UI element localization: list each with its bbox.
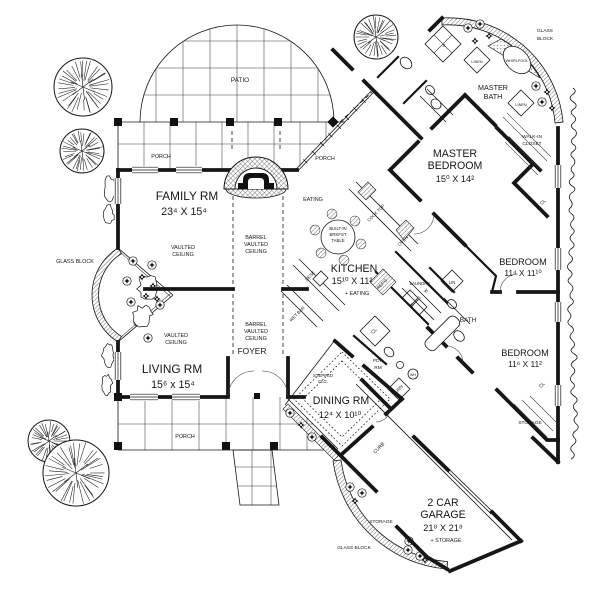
label-porch: PORCH — [151, 154, 171, 160]
label-storage: STORAGE — [369, 519, 392, 525]
room-label-master-1: MASTER — [433, 148, 477, 160]
window — [132, 166, 158, 174]
window — [130, 393, 158, 401]
label-glass-block-left: GLASS BLOCK — [56, 259, 94, 265]
fireplace — [224, 157, 288, 198]
label-water-heater: WH — [410, 373, 417, 377]
shrub-icon — [102, 374, 113, 396]
window — [114, 178, 122, 204]
planter-shrub — [133, 305, 154, 327]
label-porch: PORCH — [175, 434, 195, 440]
label-vaulted-ceiling: VAULTED — [164, 333, 188, 339]
laundry-fixtures — [402, 270, 463, 320]
window — [554, 165, 562, 188]
label-closet: CL — [538, 381, 547, 390]
room-note-garage: + STORAGE — [431, 538, 462, 544]
label-closet: CL — [370, 327, 379, 336]
hedge-icon — [567, 88, 578, 459]
label-pdr-1: PDR — [373, 358, 384, 364]
label-foyer: FOYER — [238, 346, 267, 356]
patio-grid — [129, 14, 345, 122]
window — [172, 393, 200, 401]
room-dims-family: 23⁴ X 15⁴ — [161, 206, 207, 218]
entry-walkway — [233, 448, 279, 505]
label-barrel-ceiling: CEILING — [245, 336, 267, 342]
room-dims-garage: 21⁸ X 21⁸ — [423, 523, 463, 533]
room-label-garage-2: GARAGE — [420, 509, 465, 521]
window — [114, 352, 122, 380]
label-closet: CL — [539, 198, 548, 207]
tree-icon — [54, 58, 112, 116]
room-label-master-2: BEDROOM — [428, 160, 483, 172]
room-dims-bedroom2: 11⁶ X 11² — [508, 359, 542, 369]
room-label-dining: DINING RM — [313, 395, 370, 407]
hedge-line — [567, 88, 578, 459]
window — [554, 302, 562, 322]
label-barrel-ceiling: CEILING — [245, 249, 267, 255]
room-label-family: FAMILY RM — [156, 189, 219, 203]
window — [554, 385, 562, 406]
label-cook-top: COOK TOP — [366, 203, 386, 223]
room-label-kitchen: KITCHEN — [331, 263, 378, 275]
room-label-bedroom1: BEDROOM — [499, 257, 546, 267]
label-sink: S — [416, 295, 422, 301]
room-dims-dining: 12⁴ X 10¹⁰ — [319, 410, 362, 420]
label-walkin-1: WALK-IN — [522, 134, 542, 140]
label-curb: CURB — [372, 441, 386, 455]
floor-plan-canvas: PATIO PORCH PORCH PORCH FAMILY RM 23⁴ X … — [0, 0, 600, 596]
label-lin-closet: LIN — [449, 280, 456, 285]
label-vaulted-ceiling: CEILING — [165, 340, 187, 346]
label-glass-block-tr-1: GLASS — [537, 28, 553, 34]
label-laundry: LAUNDRY — [410, 281, 431, 286]
tree-icon — [60, 129, 104, 173]
label-patio: PATIO — [231, 77, 249, 84]
walkway-grid — [233, 448, 279, 505]
label-oven: OVEN — [397, 235, 409, 247]
label-brkfst-table: BUILT-IN — [329, 226, 346, 231]
label-barrel-ceiling: BARREL — [245, 235, 267, 241]
label-storage: STORAGE — [518, 420, 541, 426]
label-brkfst-table: BRKFST — [330, 232, 347, 237]
room-dims-kitchen: 15¹⁰ X 11² — [332, 276, 373, 286]
label-glass-block-tr-2: BLOCK — [537, 36, 554, 42]
label-stepped-clg-2: CLG. — [318, 379, 328, 384]
window — [176, 166, 202, 174]
room-label-living: LIVING RM — [142, 362, 202, 376]
label-wet-bar: WET BAR — [288, 305, 305, 322]
shrub-icon — [101, 344, 114, 368]
room-label-bedroom2: BEDROOM — [501, 348, 548, 358]
label-master-bath-1: MASTER — [478, 83, 508, 92]
room-dims-living: 15⁶ x 15⁴ — [151, 379, 195, 391]
label-glass-block-bottom: GLASS BLOCK — [337, 545, 371, 551]
tree-icon — [354, 15, 398, 59]
label-brkfst-table: TABLE — [331, 238, 344, 243]
label-eating: EATING — [303, 197, 323, 203]
room-label-garage-1: 2 CAR — [427, 497, 459, 509]
label-stepped-clg-1: STEPPED — [313, 373, 333, 378]
shrub-icon — [103, 204, 114, 223]
tree-icon — [43, 440, 109, 506]
label-linen: LINEN — [471, 60, 482, 64]
label-washer: W — [423, 287, 430, 294]
label-vaulted-ceiling: CEILING — [172, 252, 194, 258]
label-bath: BATH — [460, 317, 477, 324]
window — [554, 248, 562, 270]
label-barrel-ceiling: BARREL — [245, 322, 267, 328]
label-porch: PORCH — [315, 156, 335, 162]
label-pdr-2: RM — [374, 365, 381, 371]
patio — [129, 14, 345, 122]
label-barrel-ceiling: VAULTED — [244, 242, 268, 248]
glass-block-fan-left — [92, 248, 173, 342]
room-note-kitchen: + EATING — [345, 291, 369, 297]
label-barrel-ceiling: VAULTED — [244, 329, 268, 335]
floor-plan-page: PATIO PORCH PORCH PORCH FAMILY RM 23⁴ X … — [0, 0, 600, 596]
label-master-bath-2: BATH — [484, 92, 503, 101]
room-dims-bedroom1: 11⁴ X 11¹⁰ — [504, 268, 542, 278]
label-vaulted-ceiling: VAULTED — [171, 245, 195, 251]
label-shower: S — [442, 43, 445, 49]
label-walkin-2: CLOSET — [522, 141, 541, 147]
label-linen: LINEN — [515, 103, 526, 107]
room-dims-master: 15⁰ X 14² — [436, 174, 474, 184]
label-whirlpool: WHIRLPOOL — [506, 59, 529, 63]
